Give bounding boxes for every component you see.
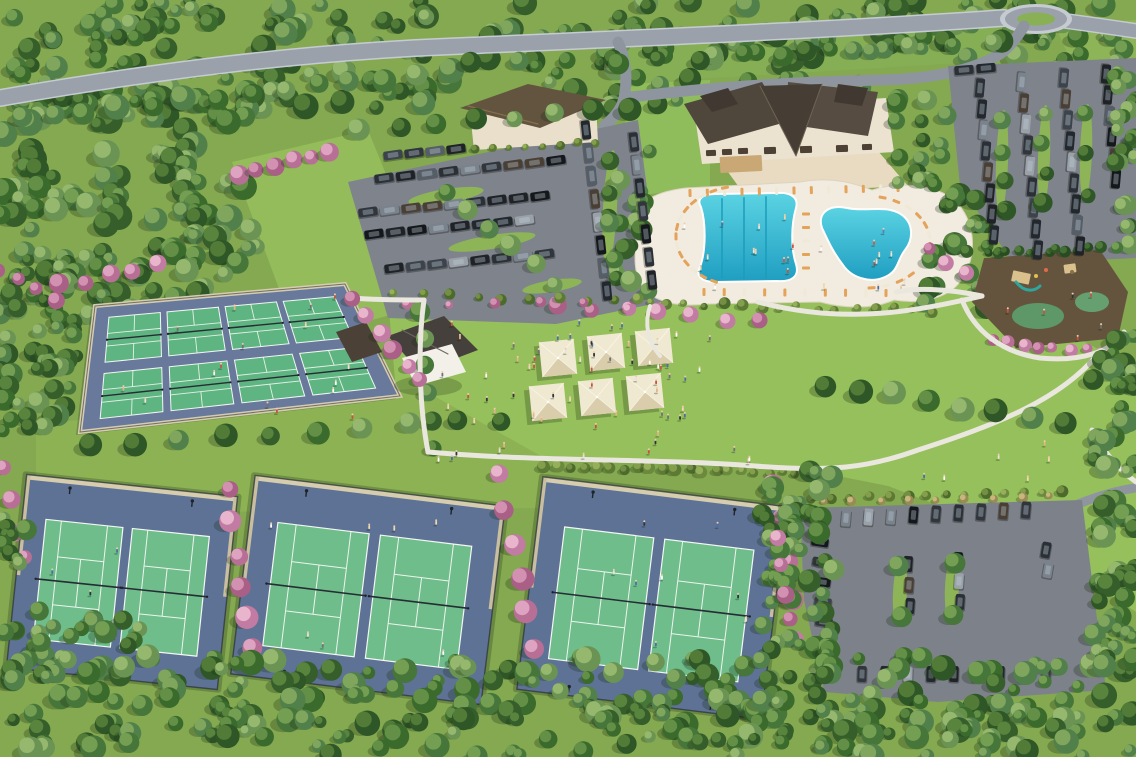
entry-road-east bbox=[1066, 21, 1136, 31]
playground-mound-large bbox=[1012, 303, 1064, 329]
clubhouse-pergola bbox=[720, 155, 763, 173]
path-parking-link bbox=[352, 298, 424, 300]
site-plan-svg bbox=[0, 0, 1136, 757]
aerial-rendering bbox=[0, 0, 1136, 757]
lap-pool bbox=[698, 193, 796, 282]
playground-mound-small bbox=[1075, 292, 1109, 312]
scene-root bbox=[0, 0, 1136, 757]
